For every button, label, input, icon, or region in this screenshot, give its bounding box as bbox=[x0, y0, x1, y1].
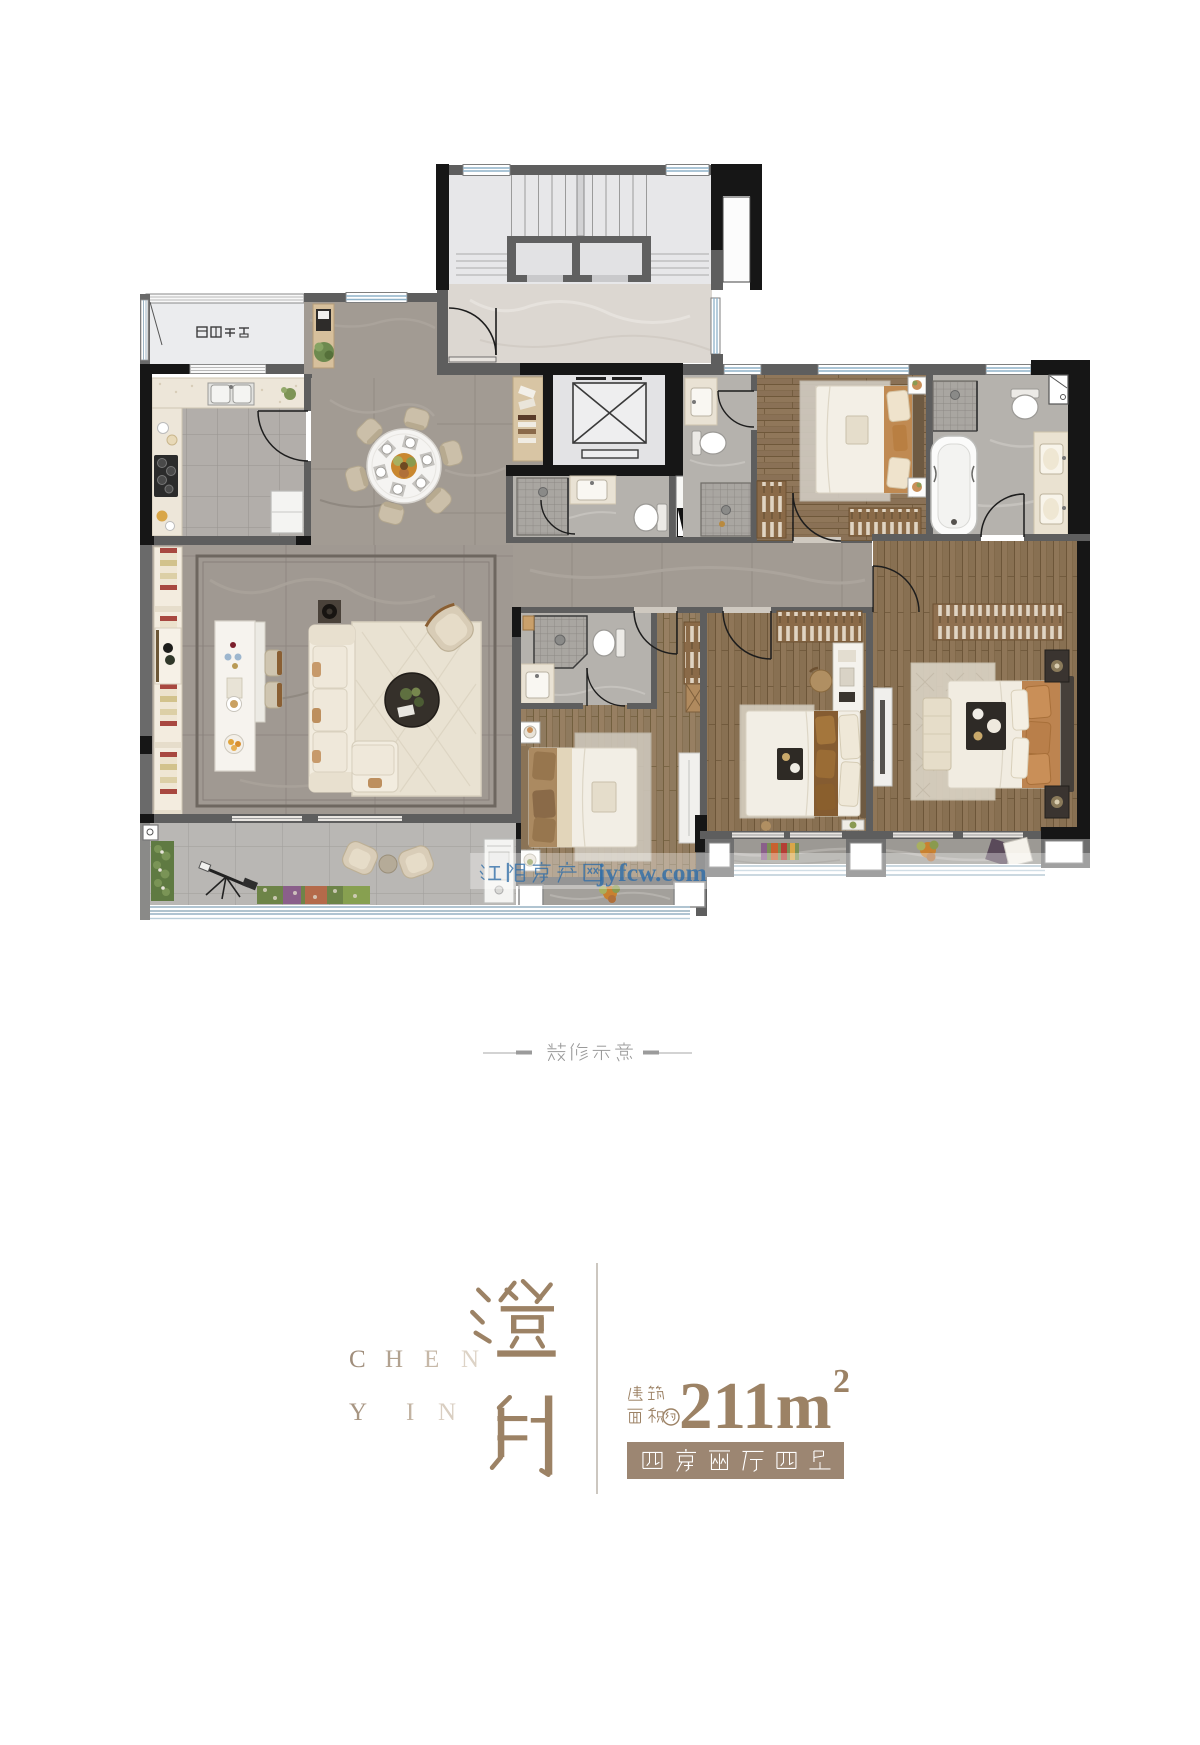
svg-text:jyfcw.com: jyfcw.com bbox=[596, 858, 707, 887]
svg-text:E: E bbox=[424, 1346, 439, 1373]
svg-text:H: H bbox=[385, 1346, 403, 1373]
svg-text:Y: Y bbox=[349, 1399, 367, 1426]
svg-text:C: C bbox=[349, 1346, 366, 1373]
svg-text:N: N bbox=[438, 1399, 456, 1426]
svg-text:N: N bbox=[461, 1346, 479, 1373]
svg-text:211m: 211m bbox=[679, 1369, 832, 1443]
svg-text:I: I bbox=[406, 1399, 414, 1426]
svg-text:2: 2 bbox=[833, 1363, 850, 1400]
